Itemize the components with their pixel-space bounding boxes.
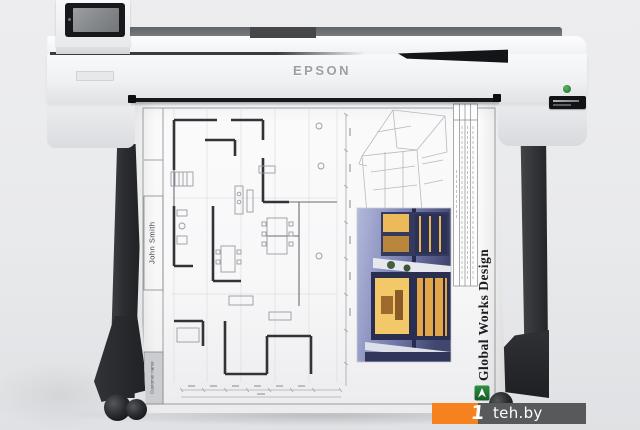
front-inset-label [76,71,114,81]
product-photo: John Smith Customer name Global Works De… [0,0,640,430]
slot-clip-right [493,94,501,102]
printed-sheet: John Smith Customer name Global Works De… [133,100,506,413]
epson-logo: EPSON [290,63,354,78]
watermark-site: teh.by [478,403,586,424]
watermark-one-glyph: 1 [470,402,486,424]
caster-wheel [126,399,147,420]
dimension-lines [180,113,350,397]
floor-plan [171,108,337,382]
touchscreen [73,8,119,32]
left-end-cap [47,99,135,148]
home-button-icon [68,18,71,21]
eco-badge-icon [563,85,571,93]
slot-shadow [131,102,499,106]
slot-clip-left [128,95,136,103]
stand-foot-left [94,316,148,402]
watermark: 1 teh.by [432,403,586,424]
customer-name: John Smith [141,196,163,290]
wireframe-rendering [359,110,447,214]
panel-base [56,47,130,54]
cover-handle [250,27,316,38]
customer-name-label: Customer name [142,353,162,403]
model-badge [549,96,586,109]
stand-leg-right [517,144,548,352]
house-photo [357,208,451,362]
global-works-design-logo-icon [474,385,490,401]
studio-title: Global Works Design [470,224,498,406]
sheet-artwork [133,100,506,413]
